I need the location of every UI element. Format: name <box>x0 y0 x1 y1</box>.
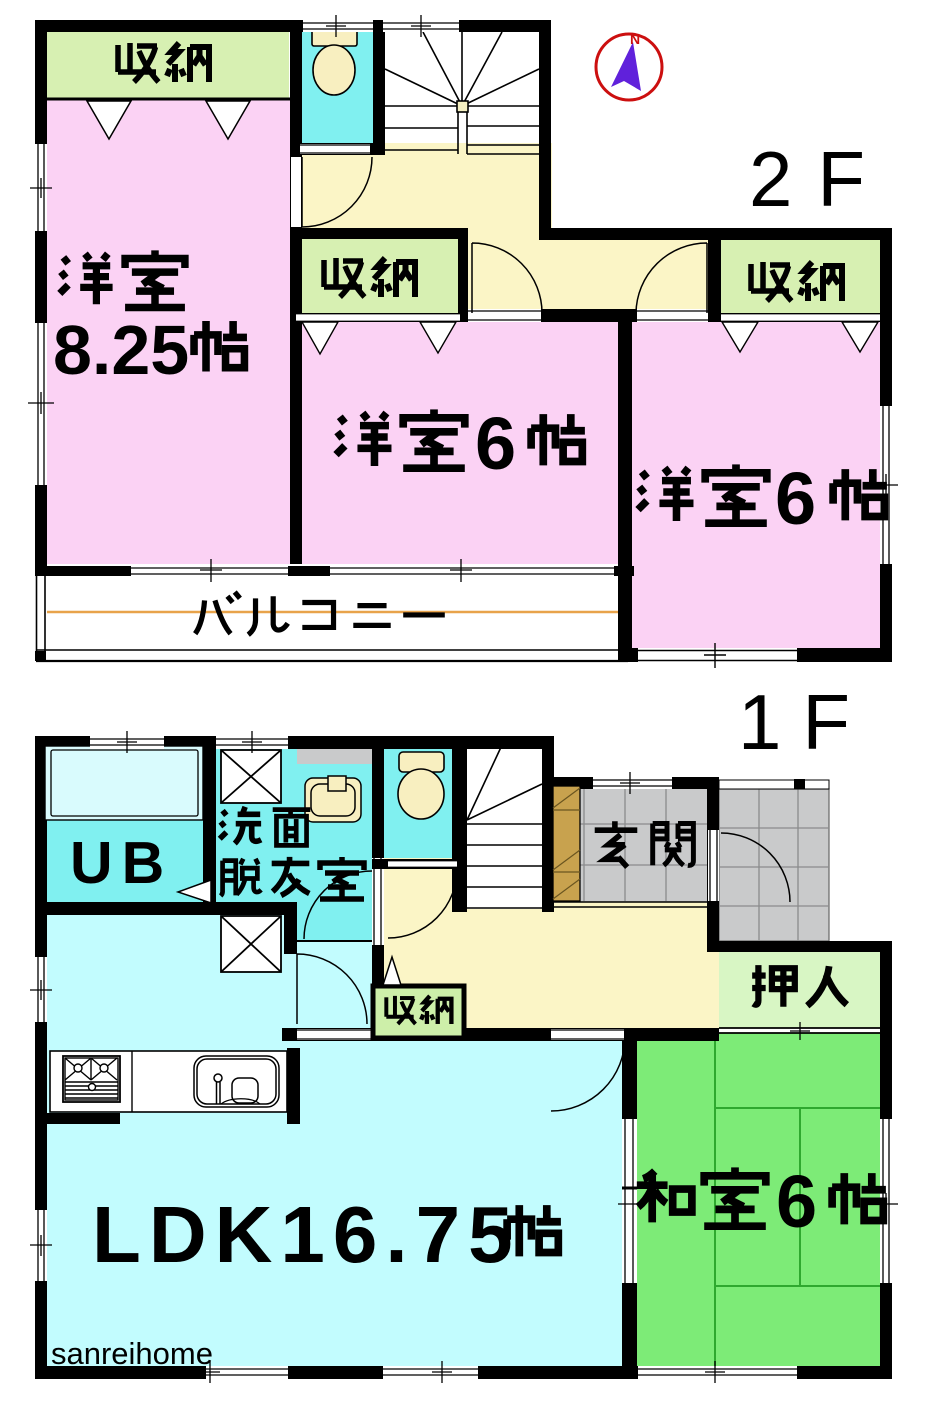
svg-text:8.25: 8.25 <box>53 311 189 389</box>
svg-text:N: N <box>630 31 640 47</box>
svg-text:UB: UB <box>70 830 173 896</box>
svg-text:6: 6 <box>475 402 516 485</box>
svg-text:6: 6 <box>775 457 816 540</box>
svg-text:1F: 1F <box>738 678 871 766</box>
svg-text:6: 6 <box>776 1160 817 1243</box>
svg-text:2F: 2F <box>749 135 890 223</box>
svg-text:LDK16.75: LDK16.75 <box>92 1190 521 1279</box>
svg-text:sanreihome: sanreihome <box>51 1336 213 1371</box>
